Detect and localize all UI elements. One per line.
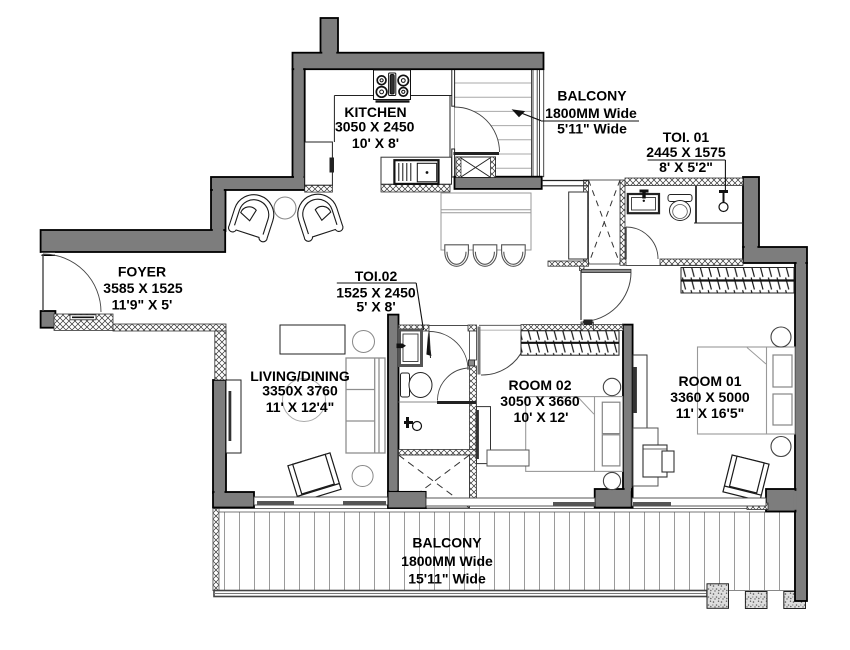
- svg-text:10' X 8': 10' X 8': [352, 135, 399, 151]
- svg-text:3360 X 5000: 3360 X 5000: [670, 389, 750, 405]
- svg-text:11' X 12'4": 11' X 12'4": [266, 399, 335, 415]
- svg-text:8' X 5'2": 8' X 5'2": [659, 159, 713, 175]
- svg-text:5' X 8': 5' X 8': [356, 299, 395, 315]
- svg-text:3350X 3760: 3350X 3760: [262, 383, 338, 399]
- svg-text:3050 X 3660: 3050 X 3660: [500, 393, 580, 409]
- svg-text:FOYER: FOYER: [118, 264, 166, 280]
- svg-text:TOI.02: TOI.02: [355, 268, 398, 284]
- svg-text:2445 X 1575: 2445 X 1575: [646, 144, 726, 160]
- svg-text:15'11" Wide: 15'11" Wide: [408, 571, 486, 587]
- svg-text:3050 X 2450: 3050 X 2450: [335, 119, 415, 135]
- svg-text:3585 X 1525: 3585 X 1525: [103, 280, 183, 296]
- svg-text:BALCONY: BALCONY: [557, 88, 627, 104]
- svg-text:11' X 16'5": 11' X 16'5": [676, 405, 745, 421]
- svg-text:5'11" Wide: 5'11" Wide: [557, 121, 627, 137]
- svg-text:1800MM Wide: 1800MM Wide: [545, 105, 637, 121]
- svg-text:1800MM Wide: 1800MM Wide: [401, 553, 493, 569]
- svg-text:TOI. 01: TOI. 01: [663, 129, 710, 145]
- svg-text:BALCONY: BALCONY: [412, 535, 482, 551]
- svg-text:ROOM 01: ROOM 01: [678, 373, 741, 389]
- svg-text:ROOM 02: ROOM 02: [508, 377, 571, 393]
- svg-text:11'9" X 5': 11'9" X 5': [112, 297, 173, 313]
- svg-text:10' X 12': 10' X 12': [514, 409, 569, 425]
